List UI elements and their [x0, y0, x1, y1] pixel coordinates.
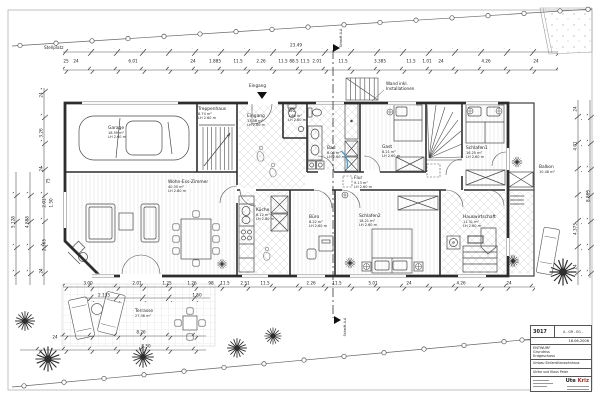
dim-label: 24	[572, 106, 577, 111]
dim-label: 2.26	[306, 280, 315, 285]
room-label-eingang: Eingang 13.58 m² LH 2.60 m	[247, 114, 265, 128]
dim-label: 2.26	[256, 58, 265, 63]
dim-label: 2.01	[312, 58, 321, 63]
car	[79, 116, 189, 160]
dim-label: 11.5	[220, 280, 229, 285]
room-label-bad: Bad 6.05 m² LH 2.60 m	[327, 146, 345, 160]
lounger	[536, 227, 560, 275]
dim-label: 2.135	[98, 292, 110, 297]
drawing-date: 18.06.2006	[531, 338, 591, 345]
dim-label: 4.375	[572, 223, 577, 235]
drawing-code: A - GR - EG -	[555, 326, 591, 337]
project-name: Umbau Einfamilienwohnhaus	[531, 360, 591, 369]
fine-print	[533, 380, 549, 381]
room-label-balkon: Balkon 10.48 m²	[539, 165, 555, 174]
dim-label: 6.01	[128, 58, 137, 63]
section-label-bottom: Schnitt A-A	[343, 318, 347, 337]
section-label-top: Schnitt A-A	[339, 29, 343, 48]
room-label-gast: Gast 8.21 m² LH 2.60 m	[382, 145, 400, 159]
dim-label: 4.01	[572, 141, 577, 150]
dim-label: 2.51	[240, 280, 249, 285]
dim-label: 3.385	[374, 58, 386, 63]
dim-label: 1.26	[187, 280, 196, 285]
room-label-schlafen2: Schlafen2 18.21 m² LH 2.60 m	[359, 214, 381, 228]
neighbor-plot	[540, 8, 592, 54]
terrace-table	[183, 316, 197, 330]
dim-label: 1.50	[192, 292, 201, 297]
dim-label: 11.5	[260, 280, 269, 285]
room-label-schlafen1: Schlafen1 16.25 m² LH 2.60 m	[466, 146, 488, 160]
dim-label: 25	[63, 58, 68, 63]
dim-label: 24	[572, 264, 577, 269]
dim-label: 24	[406, 280, 411, 285]
fine-print	[567, 386, 589, 387]
room-label-buero: Büro 8.22 m² LH 2.60 m	[309, 215, 327, 229]
dim-label: 24	[38, 92, 43, 97]
dim-label: 24	[73, 58, 78, 63]
dim-total-width: 23.49	[290, 42, 302, 47]
dim-label: 11.5	[278, 58, 287, 63]
dim-label: 4.885	[24, 216, 29, 228]
dim-label: 11.5	[406, 58, 415, 63]
room-label-flur: Flur 9.13 m² LH 2.60 m	[354, 176, 372, 190]
room-label-garage: Garage 18.59 m² LH 2.60 m	[108, 126, 126, 140]
dim-label: 1.01	[422, 58, 431, 63]
room-label-wc: WC 1.60 m² LH 2.60 m	[288, 109, 306, 123]
wall-note: Wand inkl. Installationen	[386, 81, 414, 91]
dim-label: 98	[208, 280, 213, 285]
dim-label: 24	[38, 166, 43, 171]
fine-print	[533, 386, 547, 387]
dim-label: 1.50	[48, 198, 53, 207]
room-label-treppenhaus: Treppenhaus 8.74 m² LH 2.60 m	[198, 107, 226, 121]
dim-label: 24	[533, 58, 538, 63]
dim-label: 11.5	[300, 58, 309, 63]
dim-label: 24	[52, 334, 57, 339]
dim-label: 1.25	[162, 280, 171, 285]
terrace-table-round	[92, 304, 103, 315]
dim-label: 75	[45, 178, 50, 183]
dim-label: 1.885	[209, 58, 221, 63]
dim-label: 24	[438, 58, 443, 63]
dim-label: 11.5	[332, 280, 341, 285]
dim-label: 5.125	[10, 216, 15, 228]
dim-label: 88.5	[289, 58, 298, 63]
room-label-terrasse: Terrasse 27.36 m²	[135, 309, 153, 318]
stellplatz-label: Stellplatz	[44, 45, 63, 50]
architect-logo: Ute Kriz	[531, 377, 591, 391]
client-name: Ulrike und Klaus Peter	[531, 369, 591, 377]
fine-print	[533, 383, 553, 384]
dim-label: 8.50	[141, 343, 150, 348]
fine-print	[567, 389, 589, 390]
dim-label: 11.5	[338, 58, 347, 63]
dim-label: 24	[506, 280, 511, 285]
dim-label: 8.26	[136, 329, 145, 334]
drawing-phase: ENTWURF Grundriss Erdgeschoss	[531, 345, 591, 360]
dim-label: 5.01	[368, 280, 377, 285]
dim-label: 2.01	[41, 198, 46, 207]
room-label-hauswirtschaft: Hauswirtschaft 11.31 m² LH 2.60 m	[463, 215, 496, 229]
floor-plan-sheet: Stellplatz 23.49 Eingang Wand inkl. Inst…	[0, 0, 600, 400]
dim-label: 4.26	[456, 280, 465, 285]
title-block: 3017 A - GR - EG - 18.06.2006 ENTWURF Gr…	[530, 325, 592, 392]
dim-label: 3.00	[83, 280, 92, 285]
entry-label: Eingang	[249, 83, 266, 88]
room-label-kueche: Küche 6.12 m² LH 2.80 m	[256, 208, 274, 222]
dim-label: 4.26	[481, 58, 490, 63]
dim-label: 24	[190, 58, 195, 63]
drawing-number: 3017	[531, 326, 555, 337]
dim-label: 2.01	[132, 280, 141, 285]
room-label-wohnen: Wohn-Ess-Zimmer 40.35 m² LH 2.80 m	[168, 180, 208, 194]
dim-label: 8.865	[585, 190, 590, 202]
dim-label: 2.365	[41, 239, 46, 251]
dim-label: 11.5	[233, 58, 242, 63]
dim-label: 24	[38, 268, 43, 273]
dim-label: 3.26	[38, 128, 43, 137]
